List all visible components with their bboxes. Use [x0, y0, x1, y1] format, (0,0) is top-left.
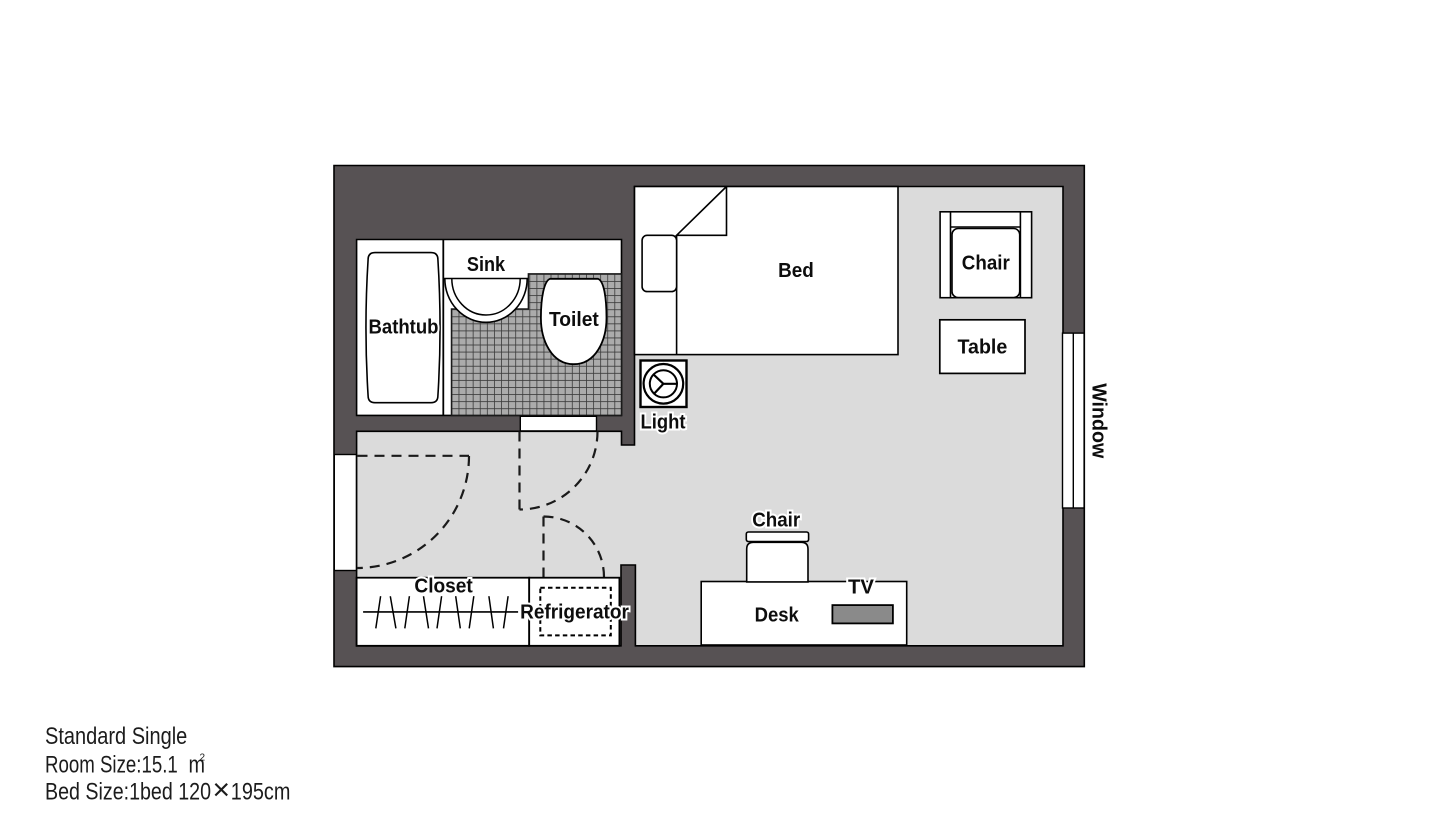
svg-text:Light: Light — [641, 412, 686, 434]
svg-text:Bed: Bed — [778, 260, 814, 282]
svg-text:Table: Table — [958, 337, 1008, 359]
svg-text:Closet: Closet — [414, 576, 473, 598]
svg-text:Chair: Chair — [752, 509, 800, 531]
svg-text:Window: Window — [1088, 383, 1110, 458]
svg-text:195cm: 195cm — [231, 778, 291, 805]
svg-text:Desk: Desk — [755, 605, 800, 627]
svg-text:Room Size:15.1: Room Size:15.1 — [45, 751, 178, 778]
svg-text:Bed Size:1bed 120: Bed Size:1bed 120 — [45, 778, 211, 805]
svg-text:Standard Single: Standard Single — [45, 723, 187, 750]
svg-text:TV: TV — [848, 577, 875, 599]
svg-text:Toilet: Toilet — [549, 309, 599, 331]
svg-text:Chair: Chair — [962, 253, 1010, 275]
svg-text:Refrigerator: Refrigerator — [520, 602, 629, 624]
svg-text:×: × — [213, 773, 231, 806]
svg-text:Bathtub: Bathtub — [369, 317, 439, 339]
svg-text:Sink: Sink — [467, 254, 506, 276]
svg-text:2: 2 — [200, 753, 206, 764]
